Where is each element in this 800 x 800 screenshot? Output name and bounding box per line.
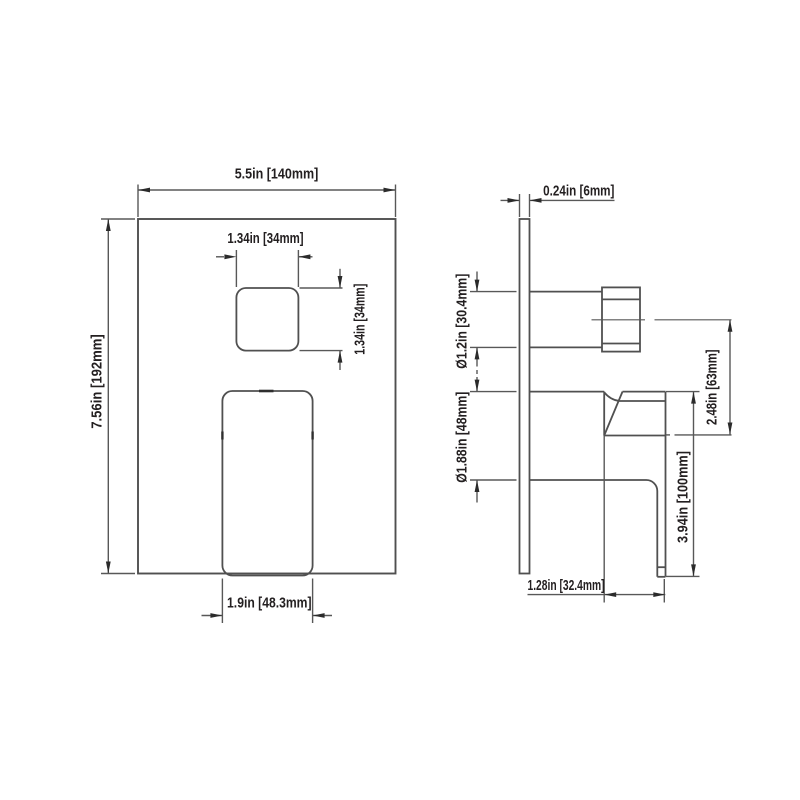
svg-text:2.48in [63mm]: 2.48in [63mm] [704, 349, 721, 425]
svg-text:1.34in [34mm]: 1.34in [34mm] [227, 230, 303, 247]
svg-text:Ø1.2in [30.4mm]: Ø1.2in [30.4mm] [454, 274, 471, 369]
svg-text:Ø1.88in [48mm]: Ø1.88in [48mm] [454, 392, 471, 483]
svg-text:1.34in [34mm]: 1.34in [34mm] [351, 284, 368, 355]
svg-text:1.9in [48.3mm]: 1.9in [48.3mm] [227, 594, 312, 611]
svg-text:7.56in [192mm]: 7.56in [192mm] [89, 334, 106, 429]
svg-text:3.94in [100mm]: 3.94in [100mm] [675, 451, 692, 543]
svg-text:5.5in [140mm]: 5.5in [140mm] [235, 166, 319, 183]
svg-text:1.28in [32.4mm]: 1.28in [32.4mm] [528, 577, 605, 594]
svg-text:0.24in [6mm]: 0.24in [6mm] [543, 182, 614, 199]
